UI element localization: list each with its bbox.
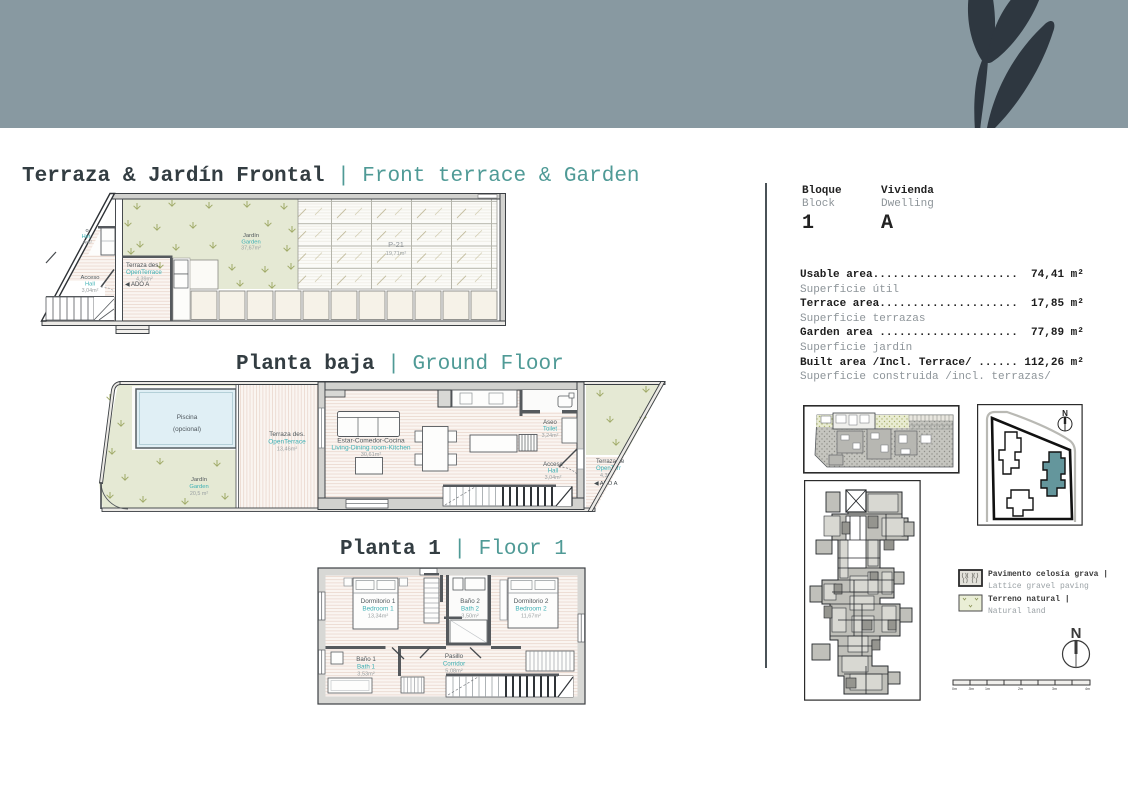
svg-text:Toilet: Toilet [543, 427, 557, 433]
svg-text:N: N [1071, 625, 1082, 642]
svg-text:◀ ADO A: ◀ ADO A [125, 282, 149, 288]
svg-text:Dormitorio 2: Dormitorio 2 [514, 598, 549, 605]
svg-text:Hall: Hall [85, 282, 95, 288]
svg-text:3,53m²: 3,53m² [357, 672, 375, 678]
svg-text:0m: 0m [952, 687, 957, 691]
svg-text:3,50m²: 3,50m² [461, 614, 479, 620]
svg-text:Terraza des.: Terraza des. [269, 431, 305, 438]
svg-text:3,04m²: 3,04m² [82, 288, 99, 294]
svg-text:3,24m²: 3,24m² [542, 433, 559, 439]
svg-text:Living-Dining room-Kitchen: Living-Dining room-Kitchen [331, 445, 410, 452]
svg-text:13,34m²: 13,34m² [368, 614, 389, 620]
svg-text:Corridor: Corridor [443, 661, 465, 668]
svg-text:P-21: P-21 [388, 240, 404, 249]
svg-text:19,71m²: 19,71m² [386, 251, 407, 257]
svg-text:2m: 2m [1018, 687, 1023, 691]
svg-text:Bath 2: Bath 2 [461, 606, 479, 613]
svg-text:Jardín: Jardín [243, 233, 259, 239]
svg-text:20,5 m²: 20,5 m² [190, 491, 208, 497]
svg-text:Jardín: Jardín [191, 477, 207, 483]
svg-text:Hall: Hall [548, 469, 558, 475]
svg-text:.5m: .5m [968, 687, 974, 691]
svg-text:Dormitorio 1: Dormitorio 1 [361, 598, 396, 605]
svg-text:11,67m²: 11,67m² [521, 614, 541, 620]
svg-text:Estar-Comedor-Cocina: Estar-Comedor-Cocina [337, 438, 405, 445]
svg-text:3m: 3m [1052, 687, 1057, 691]
svg-text:30,61m²: 30,61m² [361, 452, 382, 458]
svg-text:(opcional): (opcional) [173, 426, 201, 433]
svg-text:OpenTerrace: OpenTerrace [268, 439, 306, 446]
svg-text:4m: 4m [1085, 687, 1090, 691]
svg-text:Bedroom 2: Bedroom 2 [515, 606, 547, 613]
svg-text:OpenTerrace: OpenTerrace [126, 269, 162, 276]
svg-text:,4m²: ,4m² [82, 240, 93, 246]
svg-text:Bedroom 1: Bedroom 1 [362, 606, 394, 613]
svg-text:Piscina: Piscina [177, 414, 198, 421]
svg-text:37,67m²: 37,67m² [241, 246, 261, 252]
svg-text:Bath 1: Bath 1 [357, 664, 375, 671]
svg-text:Acceso: Acceso [80, 275, 99, 281]
svg-text:Garden: Garden [189, 484, 208, 490]
svg-text:13,46m²: 13,46m² [277, 447, 298, 453]
svg-text:Terraza des.: Terraza des. [126, 262, 160, 269]
svg-text:3,04m²: 3,04m² [545, 475, 562, 481]
svg-text:Baño 1: Baño 1 [356, 656, 376, 663]
svg-text:Pasillo: Pasillo [445, 653, 464, 660]
svg-text:Aseo: Aseo [543, 420, 557, 426]
svg-text:Baño 2: Baño 2 [460, 598, 480, 605]
svg-text:1m: 1m [985, 687, 990, 691]
svg-text:Acceso: Acceso [543, 462, 563, 468]
